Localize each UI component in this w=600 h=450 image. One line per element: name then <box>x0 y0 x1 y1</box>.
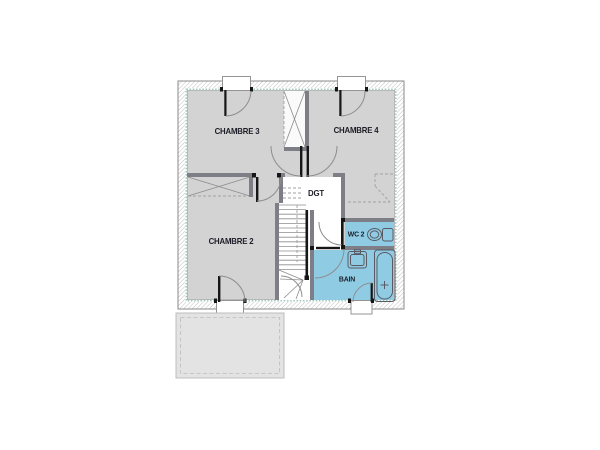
annex-outline <box>176 313 284 378</box>
room-label-chambre2: CHAMBRE 2 <box>209 236 254 246</box>
room-label-bain: BAIN <box>339 275 355 284</box>
room-label-wc2: WC 2 <box>348 230 365 239</box>
hall-area <box>314 222 341 250</box>
closet-top <box>284 91 305 147</box>
stairwell-area <box>279 203 314 300</box>
room-label-chambre4: CHAMBRE 4 <box>334 125 379 135</box>
room-label-dgt: DGT <box>308 188 324 198</box>
floor-plan-drawing <box>0 0 600 450</box>
stair-handrail <box>306 210 309 278</box>
room-label-chambre3: CHAMBRE 3 <box>215 126 260 136</box>
floor-plan-canvas: CHAMBRE 3 CHAMBRE 4 CHAMBRE 2 DGT WC 2 B… <box>0 0 600 450</box>
